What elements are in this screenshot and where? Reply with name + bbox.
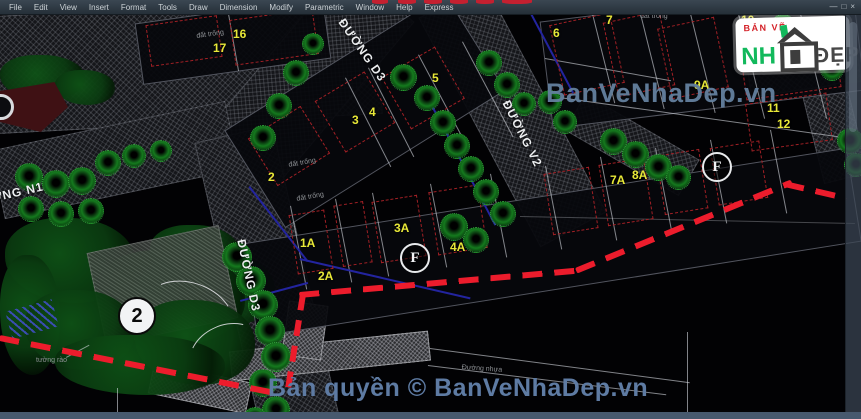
menu-dimension[interactable]: Dimension	[214, 3, 264, 12]
cad-canvas[interactable]: ĐƯỜNG D3ĐƯỜNG N1ĐƯỜNG V2ĐƯỜNG D317162345…	[0, 0, 861, 419]
lot-number: 16	[233, 27, 246, 41]
tree-icon	[18, 196, 44, 222]
application-window: ĐƯỜNG D3ĐƯỜNG N1ĐƯỜNG V2ĐƯỜNG D317162345…	[0, 0, 861, 419]
tree-icon	[490, 201, 516, 227]
restore-button[interactable]: □	[841, 2, 846, 12]
lot-number: 4A	[450, 240, 465, 254]
annotation-label: Đường nhựa	[462, 364, 503, 374]
tree-icon	[302, 33, 324, 55]
setback-dashed-rect	[543, 167, 598, 235]
annotation-label: tường rào	[36, 357, 67, 364]
tree-icon	[283, 60, 309, 86]
tree-icon	[458, 156, 484, 182]
lot-number: 3	[352, 113, 359, 127]
parcel-line	[687, 332, 688, 414]
window-controls: —□×	[829, 2, 861, 12]
tree-icon	[255, 316, 285, 346]
menu-edit[interactable]: Edit	[28, 3, 54, 12]
tree-icon	[122, 144, 146, 168]
lot-number: 3A	[394, 221, 409, 235]
close-button[interactable]: ×	[850, 2, 855, 12]
menu-items: FileEditViewInsertFormatToolsDrawDimensi…	[0, 3, 459, 12]
tree-icon	[266, 93, 292, 119]
tree-icon	[463, 227, 489, 253]
block-marker-f: F	[400, 243, 430, 273]
tree-icon	[95, 150, 121, 176]
tree-icon	[150, 140, 172, 162]
tree-icon	[666, 165, 691, 190]
logo-row: NH ĐẸP	[741, 23, 861, 68]
clipped-red-text	[424, 0, 442, 4]
lot-number: 7	[606, 13, 613, 27]
tree-icon	[42, 170, 70, 198]
tree-icon	[553, 110, 577, 134]
block-marker-f: F	[702, 152, 732, 182]
menu-express[interactable]: Express	[419, 3, 460, 12]
lot-number: 12	[777, 117, 790, 131]
lot-number: 7A	[610, 173, 625, 187]
minimize-button[interactable]: —	[829, 2, 837, 12]
bottom-strip	[0, 412, 861, 419]
lot-number: 4	[369, 105, 376, 119]
watermark-center: BanVeNhaDep.vn	[546, 78, 777, 109]
menu-view[interactable]: View	[54, 3, 83, 12]
area-marker: 2	[118, 297, 156, 335]
tree-icon	[48, 201, 74, 227]
lot-number: 2	[268, 170, 275, 184]
house-icon	[775, 24, 814, 67]
clipped-red-text	[398, 0, 416, 4]
clipped-red-text	[450, 0, 468, 4]
tree-icon	[78, 198, 104, 224]
tree-icon	[430, 110, 456, 136]
lot-number: 8A	[632, 168, 647, 182]
tree-icon	[390, 64, 417, 91]
lot-number: 5	[432, 71, 439, 85]
tree-icon	[476, 50, 502, 76]
lot-number: 1A	[300, 236, 315, 250]
house-door	[790, 50, 800, 64]
menu-modify[interactable]: Modify	[263, 3, 299, 12]
logo-text-nha: NH	[741, 45, 776, 68]
menu-tools[interactable]: Tools	[152, 3, 183, 12]
lot-number: 17	[213, 41, 226, 55]
menu-format[interactable]: Format	[115, 3, 152, 12]
watermark-bottom: Bản quyền © BanVeNhaDep.vn	[268, 374, 648, 403]
menu-draw[interactable]: Draw	[183, 3, 214, 12]
menu-parametric[interactable]: Parametric	[299, 3, 350, 12]
lot-number: 6	[553, 26, 560, 40]
vertical-scrollbar[interactable]	[845, 14, 861, 412]
menu-insert[interactable]: Insert	[83, 3, 115, 12]
tree-icon	[444, 133, 470, 159]
lot-number: 2A	[318, 269, 333, 283]
menu-window[interactable]: Window	[350, 3, 390, 12]
clipped-red-text	[476, 0, 494, 4]
tree-icon	[261, 342, 291, 372]
clipped-red-text	[372, 0, 388, 4]
clipped-red-text	[502, 0, 532, 4]
site-logo: BẢN VẼ NH ĐẸP	[735, 16, 850, 73]
tree-icon	[414, 85, 440, 111]
tree-icon	[250, 125, 276, 151]
tree-icon	[473, 179, 499, 205]
tree-icon	[68, 167, 96, 195]
menu-file[interactable]: File	[0, 3, 28, 12]
